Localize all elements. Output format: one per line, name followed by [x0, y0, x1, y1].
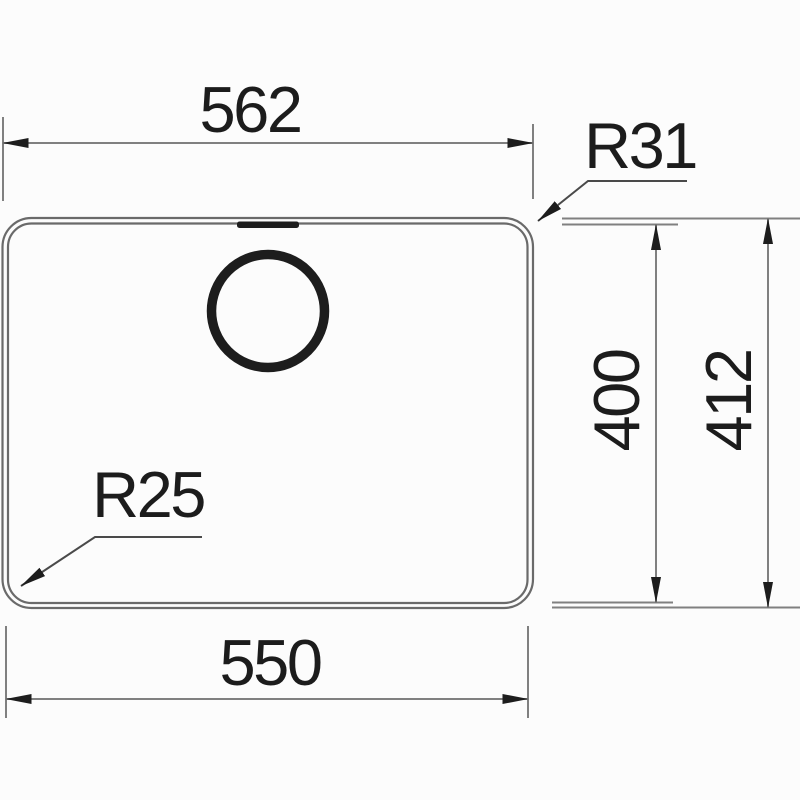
dimension-label-outer-width: 562: [200, 73, 301, 146]
callout-radius-bottom-left: R25: [21, 458, 204, 586]
sink-dimension-drawing: 562 R31 400 412 R25: [0, 0, 800, 800]
callout-radius-top-right: R31: [538, 109, 696, 221]
dimension-label-outer-height: 412: [692, 351, 765, 452]
dimension-inner-width: 550: [6, 626, 528, 718]
drain-hole-circle: [212, 255, 325, 368]
dimension-label-inner-height: 400: [580, 350, 653, 451]
radius-label-top-right: R31: [584, 109, 696, 182]
technical-drawing-canvas: 562 R31 400 412 R25: [0, 0, 800, 800]
sink-body: [3, 218, 534, 608]
radius-label-bottom-left: R25: [92, 458, 204, 531]
dimension-outer-width: 562: [3, 73, 533, 201]
dimension-inner-height: 400: [552, 225, 678, 603]
overflow-slot: [237, 222, 299, 229]
leader-line: [538, 181, 687, 221]
dimension-label-inner-width: 550: [220, 626, 321, 699]
sink-outer-rim-outline: [3, 218, 534, 608]
sink-bowl-inner-outline: [8, 224, 528, 604]
leader-line: [21, 537, 202, 586]
